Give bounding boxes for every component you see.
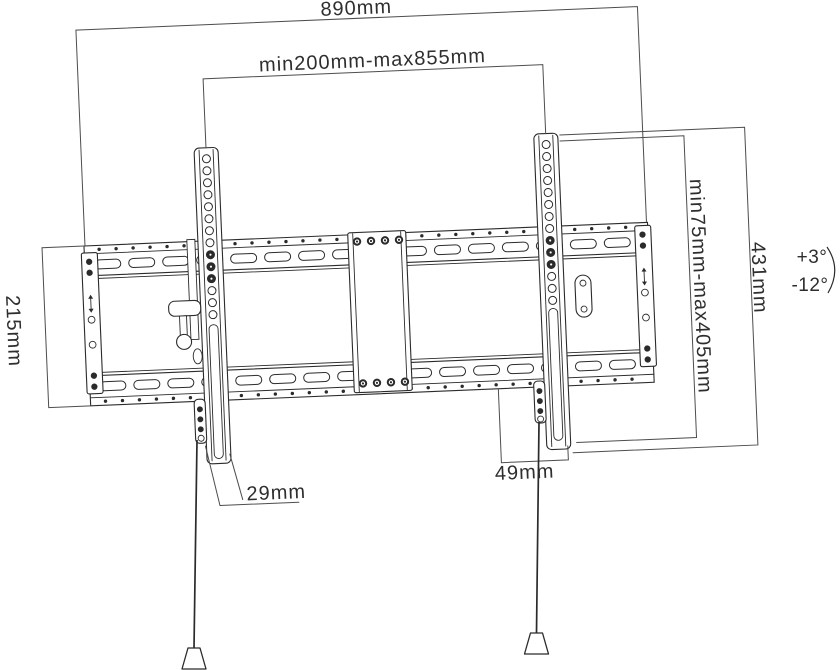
- vesa-hole: [543, 176, 551, 184]
- tv-wall-mount-technical-drawing: 890mm min200mm-max855mm 431mm min75mm-ma…: [0, 0, 840, 670]
- tilt-down-label: -12°: [791, 275, 828, 296]
- vesa-hole: [544, 200, 552, 208]
- tv-bracket-left: [162, 147, 231, 465]
- cord-weight-left: [182, 648, 206, 669]
- pull-cord-right: [525, 422, 549, 654]
- vesa-hole: [548, 284, 556, 292]
- vesa-hole: [203, 167, 211, 175]
- vesa-hole: [542, 140, 550, 148]
- vesa-hole: [208, 287, 216, 295]
- vesa-hole: [543, 164, 551, 172]
- vesa-hole: [209, 310, 217, 318]
- tilt-lever-right: [575, 275, 593, 318]
- side-offset-label: 49mm: [494, 461, 554, 485]
- vesa-hole: [204, 203, 212, 211]
- bracket-height-label: 431mm: [746, 241, 771, 314]
- safety-latch-left: [194, 399, 207, 443]
- pull-cord-left: [182, 440, 206, 669]
- vesa-hole: [545, 224, 553, 232]
- vesa-hole: [545, 212, 553, 220]
- tv-bracket-right: [523, 132, 598, 450]
- dimension-mount-span: [203, 65, 546, 148]
- vesa-hole: [205, 227, 213, 235]
- bottom-offset-label: 29mm: [246, 481, 306, 505]
- center-adapter-plate: [348, 231, 413, 393]
- vesa-hole: [542, 152, 550, 160]
- vesa-hole: [203, 179, 211, 187]
- vesa-height-label: min75mm-max405mm: [685, 178, 716, 394]
- overall-width-label: 890mm: [320, 0, 393, 21]
- wall-mount-diagram-svg: 890mm min200mm-max855mm 431mm min75mm-ma…: [0, 0, 840, 670]
- vesa-hole: [205, 215, 213, 223]
- wall-plate-height-label: 215mm: [1, 295, 26, 368]
- tilt-angle-annotation: +3° -12°: [791, 247, 834, 296]
- vesa-hole: [204, 191, 212, 199]
- safety-latch-right: [534, 381, 547, 423]
- vesa-hole: [208, 298, 216, 306]
- end-cap-right: [635, 225, 657, 367]
- vesa-hole: [549, 296, 557, 304]
- vesa-hole: [202, 155, 210, 163]
- vesa-hole: [206, 239, 214, 247]
- vesa-hole: [544, 188, 552, 196]
- cord-weight-right: [525, 633, 549, 654]
- tilt-up-label: +3°: [797, 247, 828, 268]
- vesa-hole: [547, 272, 555, 280]
